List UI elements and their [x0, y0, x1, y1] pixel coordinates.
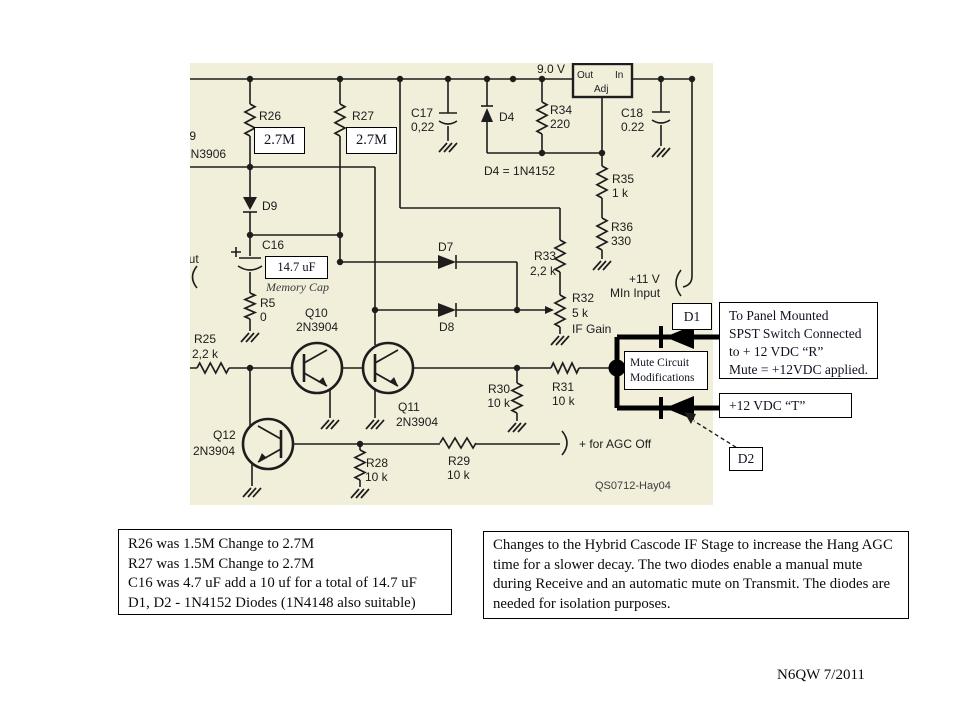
label-input-partial: Input: [172, 252, 199, 266]
label-r29: R29: [448, 454, 470, 468]
label-d7: D7: [438, 240, 454, 254]
description-note-box: Changes to the Hybrid Cascode IF Stage t…: [483, 531, 909, 619]
label-r33-value: 2,2 k: [530, 264, 557, 278]
label-q10-type: 2N3904: [296, 320, 338, 334]
label-r28-value: 10 k: [365, 470, 389, 484]
label-plus-11v: +11 V: [629, 272, 660, 286]
r26-new-value-box: 2.7M: [254, 127, 305, 154]
regulator-adj-label: Adj: [594, 84, 608, 95]
label-r34-value: 220: [550, 117, 570, 131]
label-r36-value: 330: [611, 234, 631, 248]
label-q12-type: 2N3904: [193, 444, 235, 458]
note-line: C16 was 4.7 uF add a 10 uf for a total o…: [128, 574, 442, 594]
label-q11: Q11: [398, 400, 420, 414]
label-r29-value: 10 k: [447, 468, 471, 482]
label-r35: R35: [612, 172, 634, 186]
label-r26: R26: [259, 109, 281, 123]
label-c16: C16: [262, 238, 284, 252]
signature: N6QW 7/2011: [777, 667, 865, 684]
note-line: R27 was 1.5M Change to 2.7M: [128, 555, 442, 575]
label-if-gain: IF Gain: [572, 322, 611, 336]
label-r28: R28: [366, 456, 388, 470]
label-d4-equals: D4 = 1N4152: [484, 164, 555, 178]
panel-note-line: SPST Switch Connected: [729, 325, 877, 343]
page: Q9 2N3906 Input 9.0 V Out In Adj C17 0,2…: [0, 0, 959, 719]
label-r31-value: 10 k: [552, 394, 576, 408]
d1-callout-box: D1: [672, 303, 712, 330]
label-agc-off: + for AGC Off: [579, 437, 652, 451]
label-r31: R31: [552, 380, 574, 394]
label-r30: R30: [488, 382, 510, 396]
d2-callout-box: D2: [729, 447, 763, 471]
label-r33: R33: [534, 249, 556, 263]
label-r25-value: 2,2 k: [192, 347, 219, 361]
label-c18: C18: [621, 106, 643, 120]
label-memory-cap: Memory Cap: [265, 280, 329, 294]
label-c17-value: 0,22: [411, 120, 435, 134]
label-r36: R36: [611, 220, 633, 234]
label-r35-value: 1 k: [612, 186, 629, 200]
component-changes-note-box: R26 was 1.5M Change to 2.7M R27 was 1.5M…: [118, 529, 452, 615]
mute-modifications-box: Mute Circuit Modifications: [624, 351, 708, 390]
label-q10: Q10: [305, 306, 328, 320]
r27-new-value-box: 2.7M: [346, 127, 397, 154]
label-q9-partial: Q9: [180, 129, 196, 143]
label-r34: R34: [550, 103, 572, 117]
label-r5-value: 0: [260, 310, 267, 324]
panel-note-line: to + 12 VDC “R”: [729, 343, 877, 361]
label-c17: C17: [411, 106, 433, 120]
label-mln-input: MIn Input: [610, 286, 661, 300]
c16-new-value-box: 14.7 uF: [265, 256, 328, 279]
note-line: D1, D2 - 1N4152 Diodes (1N4148 also suit…: [128, 594, 442, 614]
label-q11-type: 2N3904: [396, 415, 438, 429]
panel-note-line: Mute = +12VDC applied.: [729, 361, 877, 379]
label-r32-value: 5 k: [572, 306, 589, 320]
label-9v: 9.0 V: [537, 62, 565, 76]
panel-switch-note-box: To Panel Mounted SPST Switch Connected t…: [719, 302, 878, 379]
panel-note-line: To Panel Mounted: [729, 307, 877, 325]
regulator-in-label: In: [615, 70, 623, 81]
label-r30-value: 10 k: [487, 396, 511, 410]
label-q9-type-partial: 2N3906: [184, 147, 226, 161]
label-d4: D4: [499, 110, 515, 124]
label-r27: R27: [352, 109, 374, 123]
label-r25: R25: [194, 332, 216, 346]
label-d8: D8: [439, 320, 455, 334]
note-line: R26 was 1.5M Change to 2.7M: [128, 535, 442, 555]
label-q12: Q12: [213, 428, 236, 442]
label-c18-value: 0.22: [621, 120, 645, 134]
label-watermark: QS0712-Hay04: [595, 480, 671, 492]
t-line-label-box: +12 VDC “T”: [719, 393, 852, 418]
mute-junction-dot: [609, 360, 626, 377]
label-r5: R5: [260, 296, 276, 310]
label-d9: D9: [262, 199, 278, 213]
regulator-out-label: Out: [577, 70, 593, 81]
label-r32: R32: [572, 291, 594, 305]
